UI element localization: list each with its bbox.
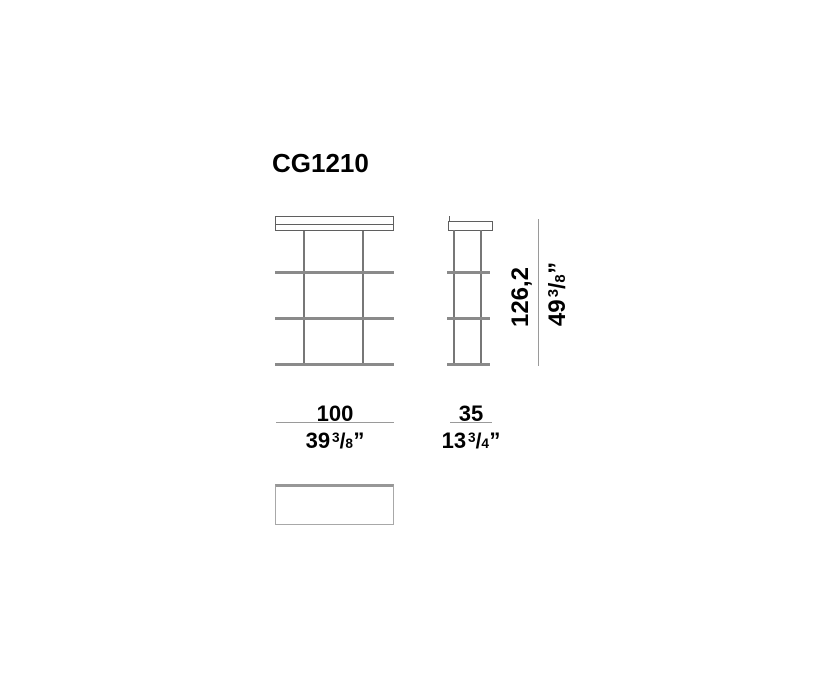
height-imperial-frac-slash: / xyxy=(544,283,570,289)
product-code-title: CG1210 xyxy=(272,150,369,176)
front-post-right xyxy=(362,231,364,365)
height-imperial-unit: ” xyxy=(544,262,571,274)
technical-drawing-page: CG1210 126,2 493/8” 100 39 xyxy=(0,0,840,679)
depth-imperial-frac-numerator: 3 xyxy=(468,430,476,445)
side-shelf-upper xyxy=(447,271,490,274)
depth-imperial-unit: ” xyxy=(489,428,500,453)
plan-view-rectangle xyxy=(275,484,394,525)
front-shelf-middle xyxy=(275,317,394,320)
width-dimension-imperial-label: 393/8” xyxy=(276,430,394,453)
side-shelf-bottom xyxy=(447,363,490,366)
width-imperial-unit: ” xyxy=(353,428,364,453)
height-imperial-whole: 49 xyxy=(544,299,571,326)
depth-dimension-line xyxy=(450,422,492,423)
side-post-left xyxy=(453,230,455,365)
width-imperial-frac-numerator: 3 xyxy=(332,430,340,445)
side-shelf-middle xyxy=(447,317,490,320)
height-dimension-line xyxy=(538,219,539,366)
front-shelf-bottom xyxy=(275,363,394,366)
width-imperial-whole: 39 xyxy=(306,428,330,453)
width-dimension-line xyxy=(276,422,394,423)
depth-imperial-whole: 13 xyxy=(442,428,466,453)
front-shelf-upper xyxy=(275,271,394,274)
depth-imperial-frac-denominator: 4 xyxy=(481,436,489,451)
front-top-shelf-box xyxy=(275,216,394,231)
front-top-shelf-inner-line xyxy=(276,224,393,225)
width-imperial-frac-denominator: 8 xyxy=(345,436,353,451)
height-dimension-metric-label: 126,2 xyxy=(509,267,533,327)
height-dimension-imperial-label: 493/8” xyxy=(546,262,570,326)
height-imperial-frac-numerator: 3 xyxy=(546,289,562,297)
depth-dimension-imperial-label: 133/4” xyxy=(421,430,521,453)
side-post-right xyxy=(480,230,482,365)
height-imperial-frac-denominator: 8 xyxy=(553,274,569,282)
front-post-left xyxy=(303,231,305,365)
